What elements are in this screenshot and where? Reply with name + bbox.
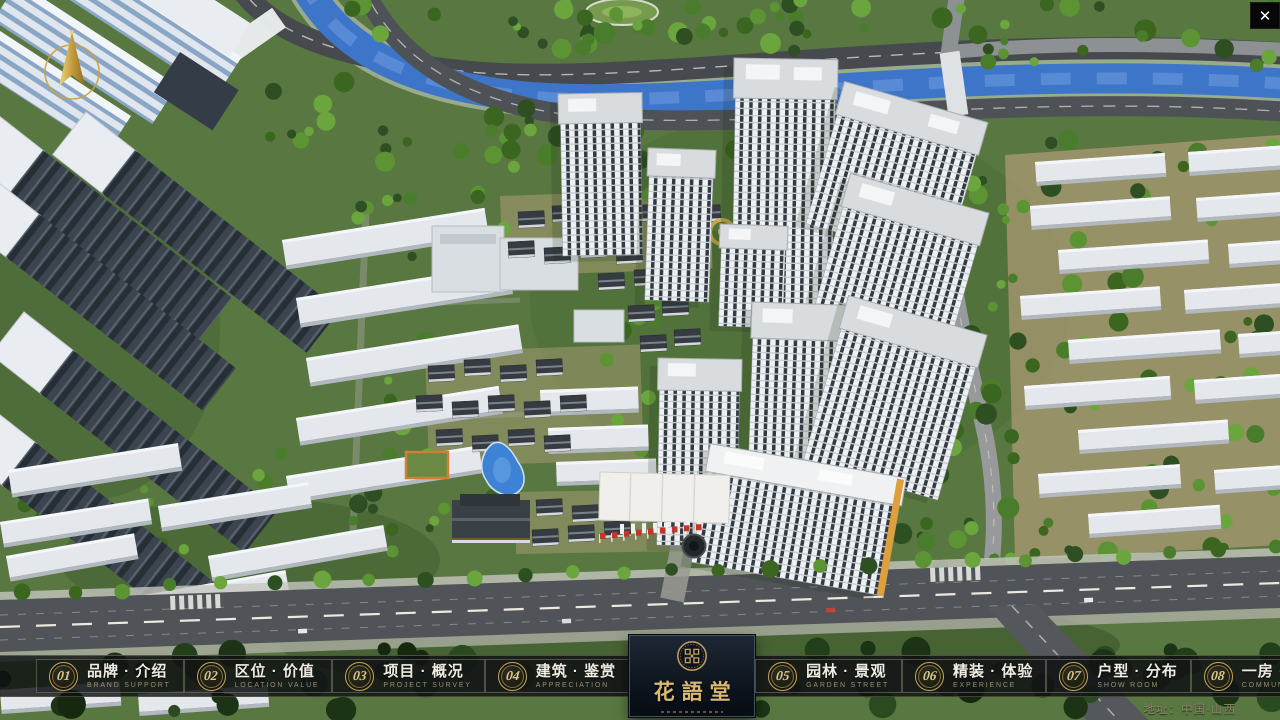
nav-label: 项目 · 概况 (383, 664, 471, 679)
nav-sublabel: APPRECIATION (536, 682, 616, 689)
nav-item-architecture[interactable]: 04 建筑 · 鉴赏 APPRECIATION (485, 659, 629, 693)
project-logo-panel[interactable]: 花語堂 (629, 635, 755, 717)
number-badge-08: 08 (1204, 662, 1233, 691)
nav-label: 品牌 · 介绍 (87, 664, 171, 679)
nav-label: 建筑 · 鉴赏 (536, 664, 616, 679)
bottom-navbar: 01 品牌 · 介绍 BRAND SUPPORT 02 区位 · 价值 LOCA… (0, 655, 1280, 697)
number-badge-03: 03 (345, 662, 374, 691)
nav-sublabel: LOCATION VALUE (235, 682, 320, 689)
nav-label: 精装 · 体验 (953, 664, 1033, 679)
number-badge-01: 01 (49, 662, 78, 691)
number-badge-04: 04 (498, 662, 527, 691)
nav-sublabel: COMMUNITY (1242, 682, 1280, 689)
masterplan-3d-view[interactable] (0, 0, 1280, 720)
number-badge-07: 07 (1059, 662, 1088, 691)
nav-label: 园林 · 景观 (806, 664, 889, 679)
compass-icon (36, 24, 108, 110)
nav-sublabel: GARDEN STREET (806, 682, 889, 689)
nav-item-garden[interactable]: 05 园林 · 景观 GARDEN STREET (755, 659, 902, 693)
project-address: 地址：中国·山西 (1144, 701, 1236, 717)
close-button[interactable]: ✕ (1250, 2, 1280, 29)
nav-label: 区位 · 价值 (235, 664, 320, 679)
project-title: 花語堂 (647, 676, 738, 706)
logo-seal-icon (675, 639, 709, 673)
app-window: ✕ 01 品牌 · 介绍 BRAND SUPPORT 02 区位 · 价值 LO… (0, 0, 1280, 720)
nav-sublabel: PROJECT SURVEY (383, 682, 471, 689)
number-badge-05: 05 (768, 662, 797, 691)
nav-sublabel: BRAND SUPPORT (87, 682, 171, 689)
nav-sublabel: EXPERIENCE (953, 682, 1033, 689)
nav-item-project[interactable]: 03 项目 · 概况 PROJECT SURVEY (332, 659, 484, 693)
nav-label: 户型 · 分布 (1097, 664, 1177, 679)
nav-item-location[interactable]: 02 区位 · 价值 LOCATION VALUE (184, 659, 333, 693)
logo-tagline-line (661, 711, 723, 713)
nav-item-brand[interactable]: 01 品牌 · 介绍 BRAND SUPPORT (36, 659, 184, 693)
close-icon: ✕ (1259, 7, 1272, 25)
number-badge-06: 06 (915, 662, 944, 691)
nav-item-interior[interactable]: 06 精装 · 体验 EXPERIENCE (902, 659, 1046, 693)
nav-sublabel: SHOW ROOM (1097, 682, 1177, 689)
nav-item-community[interactable]: 08 一房 · 一景 COMMUNITY (1191, 659, 1280, 693)
nav-label: 一房 · 一景 (1242, 664, 1280, 679)
number-badge-02: 02 (197, 662, 226, 691)
nav-item-floorplan[interactable]: 07 户型 · 分布 SHOW ROOM (1046, 659, 1190, 693)
